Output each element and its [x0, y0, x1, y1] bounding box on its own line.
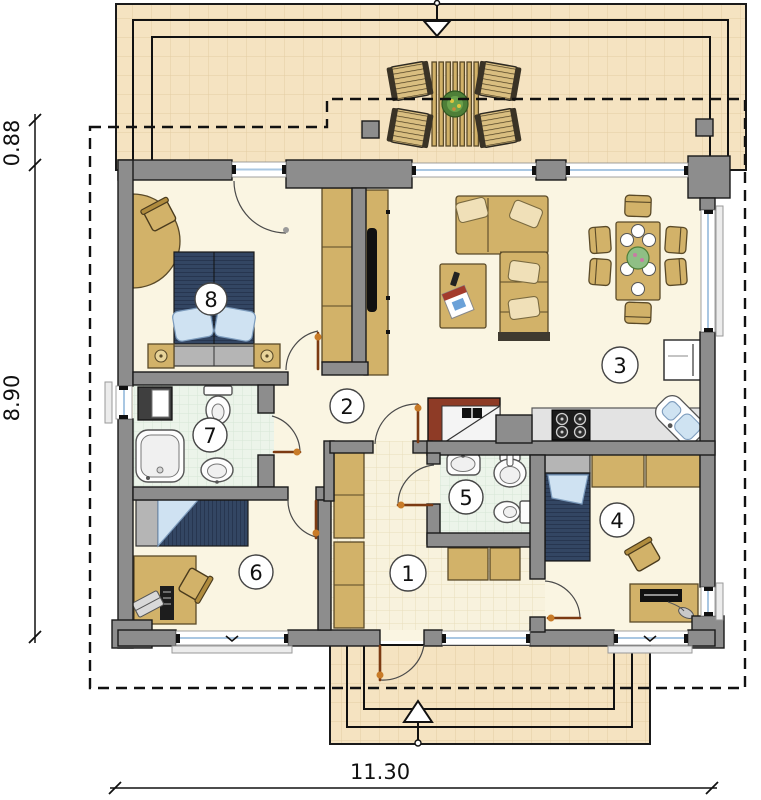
plate-icon: [643, 234, 656, 247]
room-badge-1: 1: [390, 555, 426, 591]
window: [701, 583, 723, 620]
plate-icon: [621, 234, 634, 247]
wall-segment: [688, 630, 715, 646]
wall-segment: [700, 332, 715, 587]
wall-segment: [530, 617, 545, 632]
terrace-chair: [474, 108, 521, 149]
wall-segment: [424, 630, 442, 646]
bed-headboard: [545, 455, 590, 473]
dimension-bottom-width: 11.30: [350, 760, 410, 784]
window: [232, 162, 286, 177]
wall-segment: [427, 441, 715, 455]
window: [566, 163, 688, 177]
room-badge-6: 6: [239, 555, 273, 589]
wall-segment: [286, 160, 412, 188]
wall-segment: [118, 630, 176, 646]
dimension-left-side: 8.90: [0, 375, 24, 422]
room-badge-2: 2: [330, 389, 364, 423]
floor-plan-svg: 1 2 3 4 5 6 7 8: [0, 0, 761, 800]
wall-segment: [133, 372, 288, 385]
hall-bench: [448, 548, 488, 580]
room-3-number: 3: [613, 354, 626, 378]
centerpiece-icon: [627, 247, 649, 269]
terrace-chair: [474, 61, 521, 102]
room-2-number: 2: [340, 395, 353, 419]
dimension-left-top: 0.88: [0, 120, 24, 167]
hall-bench: [490, 548, 520, 580]
terrace-chair: [386, 108, 433, 149]
washing-machine-icon: [138, 387, 172, 420]
wardrobe: [592, 454, 644, 487]
toilet-icon: [494, 501, 532, 523]
room-badge-7: 7: [193, 418, 227, 452]
fridge-icon: [664, 340, 702, 380]
window: [608, 631, 692, 653]
bathtub-icon: [136, 430, 184, 482]
dining-chair: [625, 302, 652, 324]
plate-icon: [632, 283, 645, 296]
entrance-porch: [330, 645, 650, 746]
terrace-post: [696, 119, 713, 136]
room-badge-4: 4: [600, 503, 634, 537]
room-badge-5: 5: [449, 480, 483, 514]
plant-icon: [442, 91, 468, 117]
dining-chair: [589, 226, 612, 253]
dining-chair: [665, 258, 688, 285]
window: [172, 631, 292, 653]
wall-segment: [536, 160, 566, 180]
room-6-number: 6: [249, 561, 262, 585]
room-badge-8: 8: [195, 283, 227, 315]
wardrobe: [322, 188, 352, 362]
terrace: [116, 1, 746, 171]
sofa-pillow: [508, 296, 540, 320]
window: [442, 631, 530, 645]
wall-segment: [427, 453, 440, 464]
room-badge-3: 3: [602, 347, 638, 383]
room-1-number: 1: [401, 562, 414, 586]
terrace-chair: [386, 61, 433, 102]
room-7-number: 7: [203, 424, 216, 448]
window: [105, 382, 132, 423]
sofa-armrest: [498, 332, 550, 341]
wall-segment: [118, 160, 133, 386]
dining-chair: [665, 226, 688, 253]
window: [412, 163, 536, 177]
wall-segment: [258, 385, 274, 413]
wall-segment: [530, 455, 545, 579]
corner-column: [688, 156, 730, 198]
wall-segment: [288, 630, 380, 646]
tv-icon: [367, 228, 377, 312]
wall-segment: [322, 362, 368, 375]
wall-segment: [118, 419, 133, 648]
wall-segment: [700, 198, 715, 210]
dining-chair: [589, 258, 612, 285]
wall-segment: [318, 500, 331, 630]
wall-segment: [330, 441, 373, 453]
terrace-post: [362, 121, 379, 138]
sofa-pillow: [508, 260, 540, 284]
plate-icon: [632, 225, 645, 238]
bed-headboard: [136, 500, 158, 546]
room-4-number: 4: [610, 509, 623, 533]
wall-segment: [352, 188, 366, 364]
wall-segment: [258, 455, 274, 487]
wall-segment: [118, 160, 232, 180]
fireplace: [428, 398, 500, 444]
porch-floor: [330, 645, 650, 744]
room-5-number: 5: [459, 486, 472, 510]
tv-unit: [364, 190, 390, 375]
dining-chair: [625, 195, 652, 217]
floor-plan-canvas: 1 2 3 4 5 6 7 8: [0, 0, 761, 800]
wall-segment: [427, 533, 545, 547]
wall-segment: [133, 487, 288, 500]
wardrobe: [646, 454, 700, 487]
room-8-number: 8: [204, 288, 217, 312]
window: [701, 206, 723, 336]
wall-segment: [496, 415, 532, 443]
